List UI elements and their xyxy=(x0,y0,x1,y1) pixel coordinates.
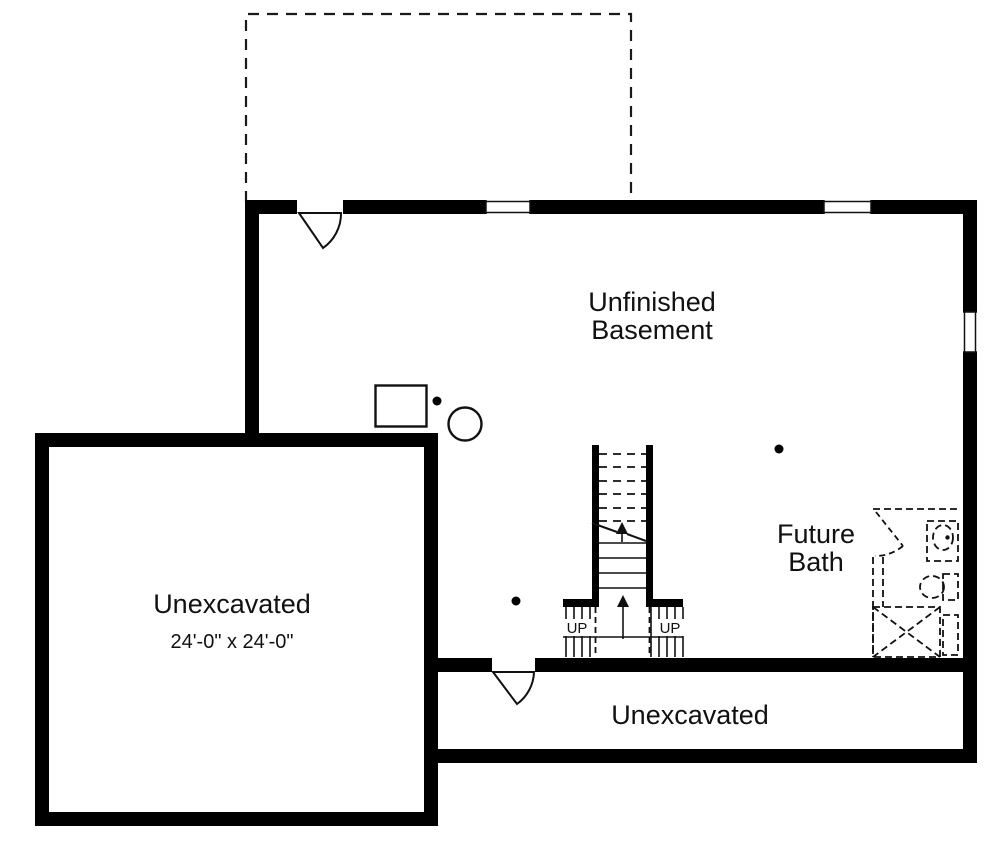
support-column-1 xyxy=(433,397,442,406)
future-bath-label-line2: Bath xyxy=(788,547,844,577)
wall-bottom-unexcavated xyxy=(35,812,438,826)
wall-right-seg1 xyxy=(963,200,977,312)
wall-right-unexcavated xyxy=(424,433,438,826)
stair-wall-right xyxy=(646,445,653,607)
wall-bottom-basement-seg2 xyxy=(535,658,963,672)
wall-top-seg3 xyxy=(530,200,824,214)
stair-up-left-label: UP xyxy=(567,620,588,637)
basement-label-line2: Basement xyxy=(591,315,713,345)
wall-right-seg2 xyxy=(963,352,977,763)
window-top-1 xyxy=(486,200,530,214)
floor-plan-page: UP UP Unfinished Basement Future Bath Un… xyxy=(0,0,1000,846)
wall-left-basement xyxy=(245,200,259,447)
stair-up-right-label: UP xyxy=(660,620,681,637)
basement-label-line1: Unfinished xyxy=(588,287,716,317)
window-right xyxy=(963,312,977,352)
unexcavated-main-label: Unexcavated xyxy=(153,589,311,619)
stair-landing-bar-left xyxy=(563,599,594,607)
support-column-2 xyxy=(512,597,521,606)
wall-top-seg4 xyxy=(871,200,977,214)
sink-drain-dot xyxy=(945,535,949,539)
window-top-2 xyxy=(824,200,871,214)
unexcavated-strip-label: Unexcavated xyxy=(611,700,769,730)
door-bottom-opening xyxy=(492,657,535,673)
wall-top-unexcavated xyxy=(35,433,438,447)
stair-landing-bar-right xyxy=(647,599,683,607)
unexcavated-main-dimensions: 24'-0" x 24'-0" xyxy=(170,631,293,653)
plan-background xyxy=(0,0,1000,846)
support-column-3 xyxy=(775,445,784,454)
wall-bottom-strip xyxy=(424,749,977,763)
basement-floor-plan: UP UP Unfinished Basement Future Bath Un… xyxy=(0,0,1000,846)
furnace xyxy=(376,386,427,427)
wall-left-unexcavated xyxy=(35,433,49,826)
wall-top-seg2 xyxy=(343,200,486,214)
future-bath-label-line1: Future xyxy=(777,519,855,549)
water-heater xyxy=(449,408,482,441)
